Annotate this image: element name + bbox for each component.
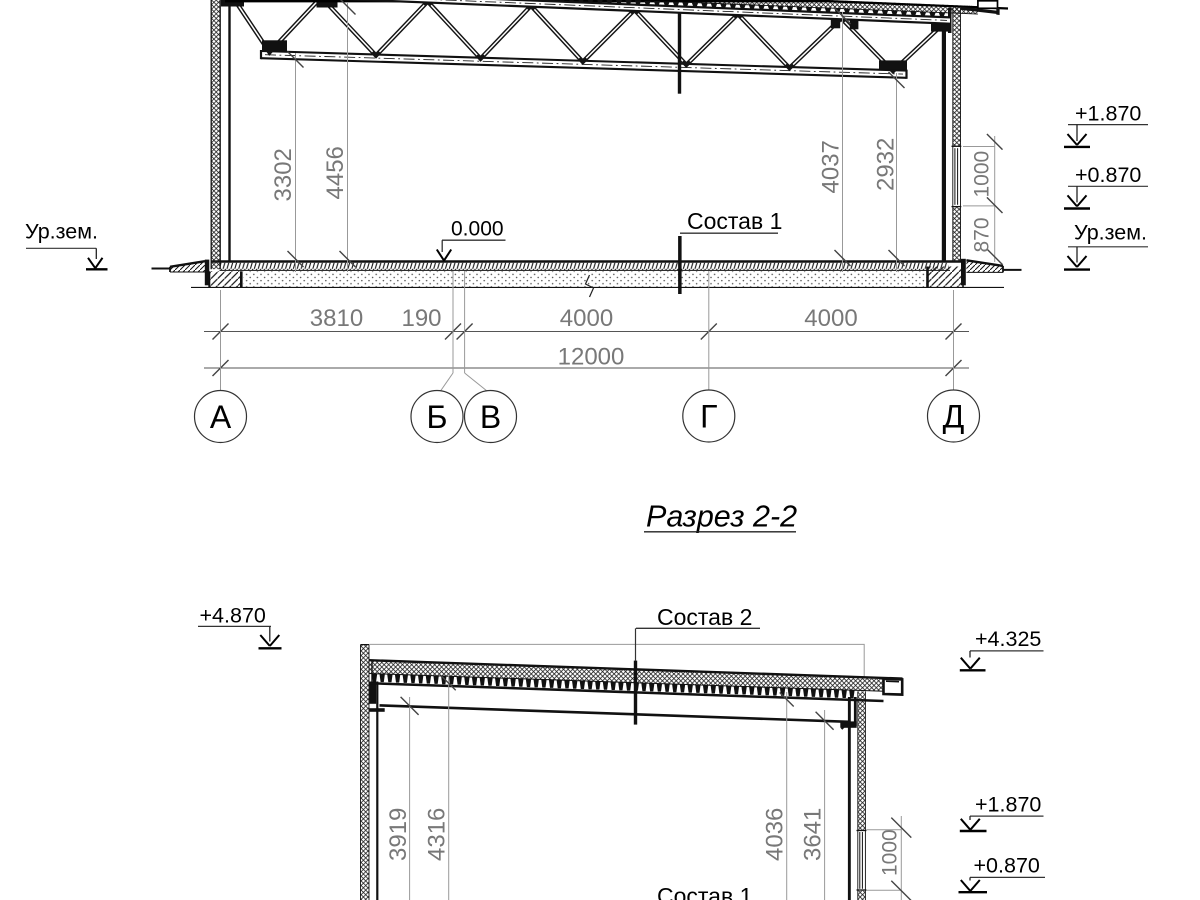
- svg-text:190: 190: [401, 305, 441, 332]
- svg-text:+0.870: +0.870: [974, 854, 1040, 878]
- svg-text:4000: 4000: [560, 305, 613, 332]
- svg-text:Д: Д: [943, 399, 965, 435]
- svg-text:+0.870: +0.870: [1075, 163, 1141, 187]
- svg-text:4037: 4037: [818, 140, 845, 193]
- svg-text:Состав 1: Состав 1: [657, 883, 752, 900]
- svg-text:1000: 1000: [971, 151, 994, 198]
- svg-text:0.000: 0.000: [451, 218, 504, 241]
- svg-text:Ур.зем.: Ур.зем.: [25, 220, 98, 244]
- svg-text:2932: 2932: [873, 138, 900, 191]
- svg-text:1000: 1000: [879, 829, 902, 876]
- svg-text:В: В: [480, 399, 501, 435]
- svg-text:4036: 4036: [762, 808, 789, 861]
- svg-text:Состав 2: Состав 2: [657, 604, 752, 630]
- svg-text:Состав 1: Состав 1: [687, 208, 782, 234]
- svg-text:+4.325: +4.325: [975, 627, 1041, 651]
- svg-text:3810: 3810: [310, 305, 363, 332]
- svg-text:Г: Г: [700, 399, 717, 435]
- svg-text:3302: 3302: [270, 148, 297, 201]
- svg-text:4000: 4000: [804, 305, 857, 332]
- svg-text:А: А: [210, 399, 232, 435]
- svg-text:+1.870: +1.870: [1075, 102, 1141, 126]
- svg-text:4456: 4456: [322, 146, 349, 199]
- svg-text:3641: 3641: [800, 808, 827, 861]
- svg-text:4316: 4316: [424, 808, 451, 861]
- svg-text:+1.870: +1.870: [975, 792, 1041, 816]
- svg-text:Ур.зем.: Ур.зем.: [1074, 220, 1147, 244]
- svg-text:12000: 12000: [558, 344, 625, 371]
- svg-text:+4.870: +4.870: [200, 604, 266, 628]
- svg-text:Разрез 2-2: Разрез 2-2: [646, 500, 797, 534]
- svg-text:870: 870: [971, 217, 994, 252]
- svg-text:Б: Б: [427, 399, 448, 435]
- svg-text:3919: 3919: [385, 808, 412, 861]
